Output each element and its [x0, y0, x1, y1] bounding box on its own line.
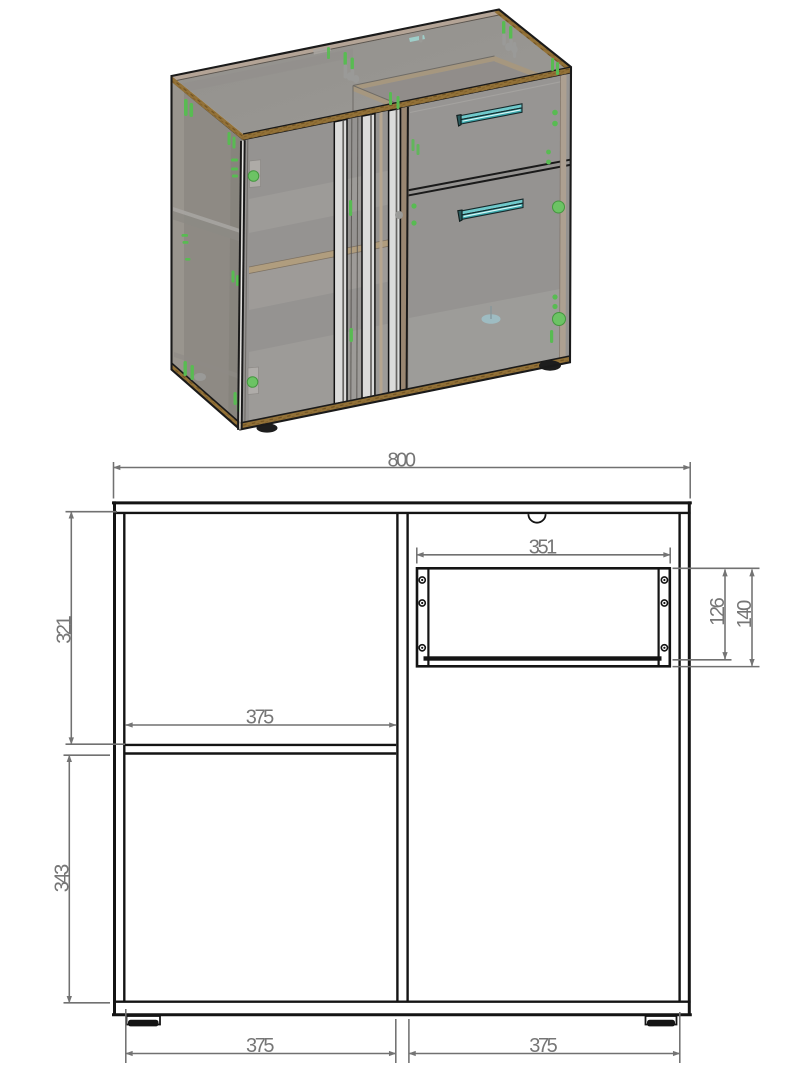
svg-text:375: 375 — [246, 1035, 275, 1057]
svg-text:800: 800 — [387, 449, 416, 471]
svg-text:343: 343 — [52, 864, 74, 893]
svg-text:126: 126 — [707, 597, 729, 626]
svg-text:375: 375 — [529, 1035, 558, 1057]
svg-text:351: 351 — [529, 537, 558, 559]
svg-text:140: 140 — [734, 600, 756, 629]
svg-text:321: 321 — [54, 615, 76, 644]
svg-text:375: 375 — [246, 707, 275, 729]
